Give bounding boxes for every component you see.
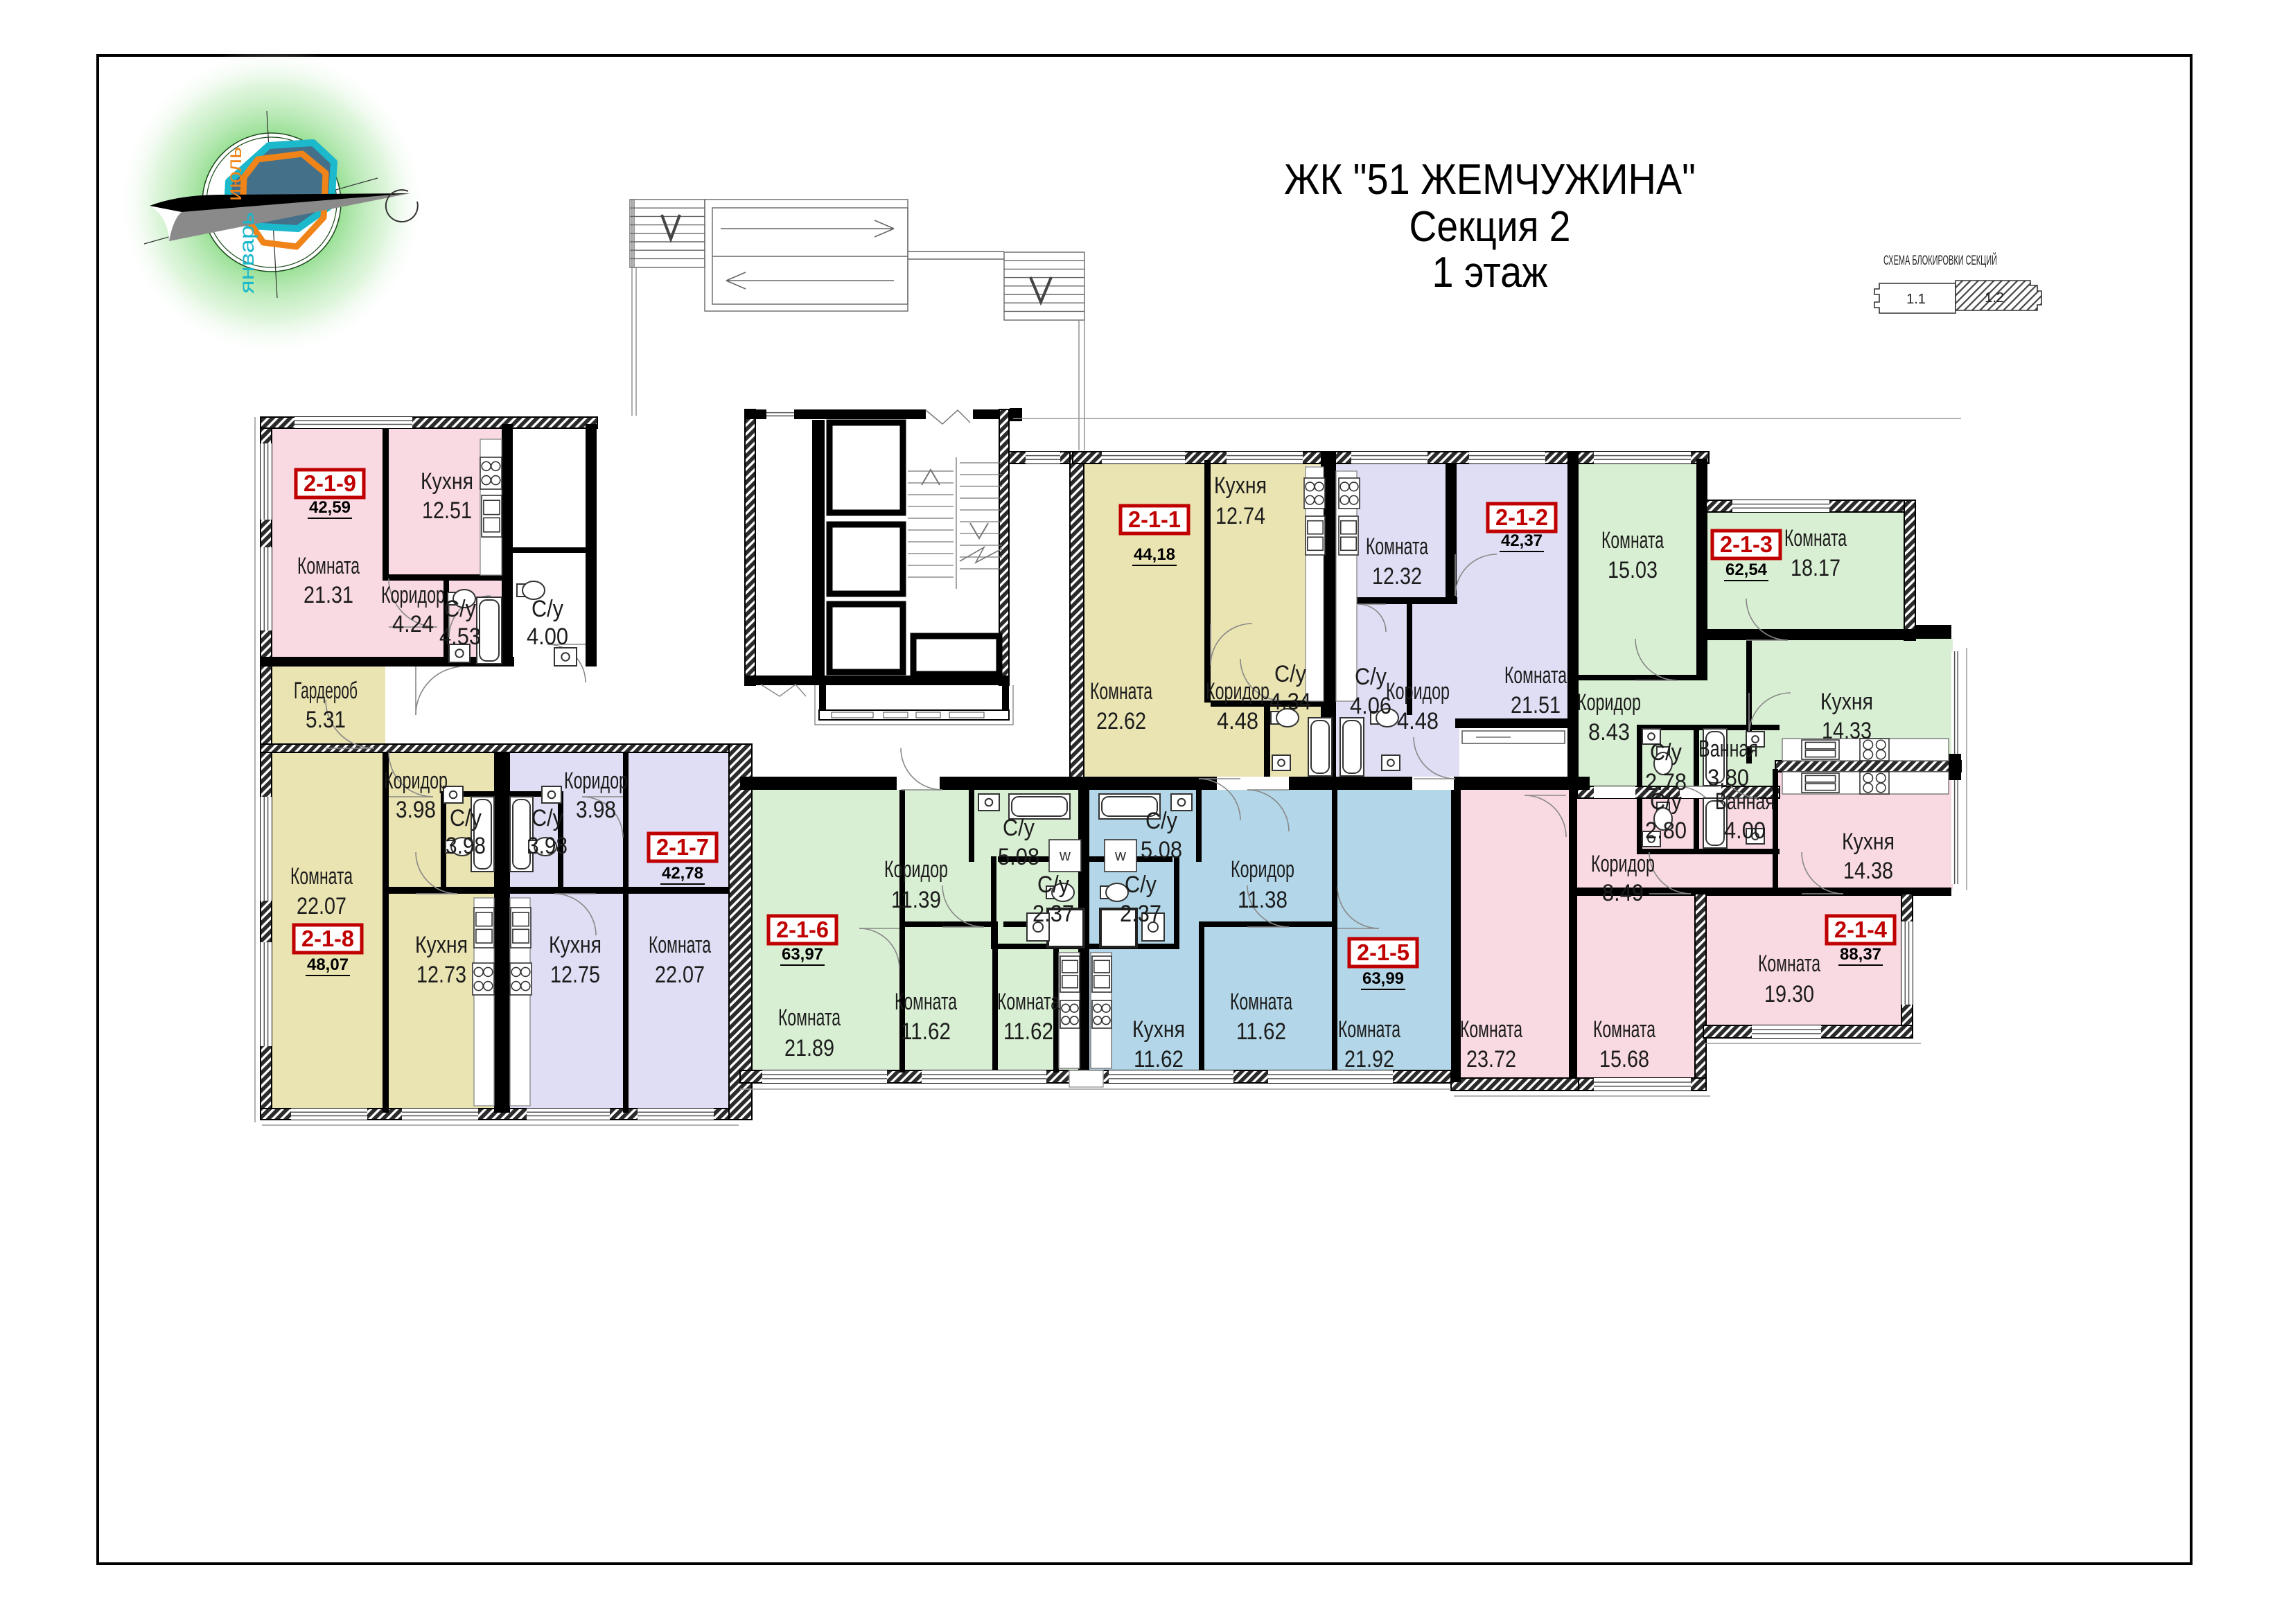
svg-text:22.07: 22.07	[655, 962, 705, 988]
svg-text:2-1-9: 2-1-9	[304, 470, 356, 496]
svg-text:4.48: 4.48	[1397, 708, 1439, 734]
svg-text:Коридор: Коридор	[564, 768, 628, 794]
svg-text:4.24: 4.24	[392, 611, 434, 637]
svg-text:44,18: 44,18	[1134, 545, 1175, 564]
svg-text:5.31: 5.31	[306, 707, 346, 733]
svg-text:1.2: 1.2	[1985, 290, 2004, 306]
svg-text:Комната: Комната	[778, 1005, 841, 1031]
svg-text:Кухня: Кухня	[1820, 689, 1873, 715]
svg-text:1.1: 1.1	[1906, 292, 1926, 307]
svg-text:88,37: 88,37	[1840, 945, 1881, 964]
svg-text:С/у: С/у	[444, 596, 476, 622]
svg-text:Комната: Комната	[895, 989, 957, 1015]
svg-text:2.37: 2.37	[1033, 901, 1074, 927]
svg-text:4.00: 4.00	[527, 624, 568, 650]
svg-text:Комната: Комната	[1230, 989, 1292, 1015]
svg-text:48,07: 48,07	[307, 955, 349, 974]
svg-text:Кухня: Кухня	[1132, 1016, 1185, 1043]
svg-text:8.49: 8.49	[1602, 880, 1644, 906]
svg-text:2-1-6: 2-1-6	[776, 917, 829, 942]
svg-text:8.43: 8.43	[1588, 719, 1630, 745]
svg-text:2.80: 2.80	[1645, 818, 1687, 844]
svg-text:С/у: С/у	[1125, 872, 1157, 898]
svg-text:Комната: Комната	[1090, 678, 1152, 705]
svg-text:2-1-2: 2-1-2	[1495, 504, 1548, 530]
svg-text:12.51: 12.51	[422, 497, 472, 524]
svg-text:Гардероб: Гардероб	[294, 678, 358, 704]
svg-text:Кухня: Кухня	[1214, 473, 1267, 499]
svg-text:Кухня: Кухня	[415, 932, 468, 958]
svg-text:63,99: 63,99	[1362, 969, 1404, 988]
svg-text:Ванная: Ванная	[1698, 736, 1758, 762]
svg-text:3.98: 3.98	[576, 797, 616, 823]
svg-text:ЖК "51 ЖЕМЧУЖИНА": ЖК "51 ЖЕМЧУЖИНА"	[1284, 156, 1696, 204]
svg-text:июль: июль	[223, 147, 246, 201]
svg-text:С/у: С/у	[531, 805, 563, 831]
svg-text:Коридор: Коридор	[1231, 856, 1294, 883]
svg-text:4.53: 4.53	[439, 624, 481, 650]
svg-text:Коридор: Коридор	[1206, 678, 1270, 705]
svg-text:11.39: 11.39	[891, 887, 941, 913]
svg-text:11.62: 11.62	[1236, 1018, 1286, 1045]
svg-text:14.38: 14.38	[1843, 858, 1893, 884]
svg-text:С/у: С/у	[1650, 788, 1682, 815]
svg-text:С/у: С/у	[1037, 872, 1069, 898]
svg-text:январь: январь	[236, 212, 258, 294]
svg-text:4.48: 4.48	[1217, 708, 1258, 734]
svg-text:w: w	[1059, 847, 1071, 864]
svg-text:21.89: 21.89	[784, 1035, 834, 1061]
svg-text:23.72: 23.72	[1466, 1046, 1516, 1073]
svg-text:С/у: С/у	[531, 596, 563, 622]
svg-text:4.00: 4.00	[1724, 818, 1766, 844]
svg-text:3.98: 3.98	[396, 797, 436, 823]
svg-text:Комната: Комната	[1366, 533, 1428, 560]
svg-text:21.51: 21.51	[1511, 692, 1561, 718]
svg-text:Комната: Комната	[1758, 951, 1820, 977]
svg-text:42,37: 42,37	[1501, 531, 1543, 550]
svg-text:Кухня: Кухня	[421, 468, 473, 495]
svg-text:С/у: С/у	[1355, 664, 1387, 690]
svg-text:63,97: 63,97	[782, 945, 823, 964]
svg-text:12.73: 12.73	[416, 962, 466, 988]
svg-text:С/у: С/у	[1274, 661, 1306, 687]
svg-text:14.33: 14.33	[1822, 718, 1872, 744]
svg-text:2.37: 2.37	[1120, 901, 1161, 927]
svg-text:5.08: 5.08	[1141, 837, 1182, 863]
svg-text:1 этаж: 1 этаж	[1432, 249, 1548, 297]
svg-text:11.62: 11.62	[901, 1018, 951, 1045]
svg-text:Комната: Комната	[997, 989, 1060, 1015]
svg-text:22.07: 22.07	[297, 893, 346, 919]
svg-text:С/у: С/у	[1003, 815, 1035, 841]
svg-text:Ванная: Ванная	[1715, 788, 1775, 815]
svg-text:3.98: 3.98	[446, 833, 486, 859]
svg-text:12.75: 12.75	[550, 962, 600, 988]
svg-text:11.62: 11.62	[1134, 1046, 1184, 1073]
svg-text:3.80: 3.80	[1707, 765, 1749, 791]
svg-text:Кухня: Кухня	[1842, 829, 1895, 855]
svg-text:2-1-1: 2-1-1	[1128, 506, 1181, 532]
svg-text:Комната: Комната	[1460, 1016, 1522, 1043]
svg-text:2-1-3: 2-1-3	[1720, 531, 1773, 557]
svg-text:Коридор: Коридор	[1577, 689, 1641, 716]
svg-text:Коридор: Коридор	[384, 768, 448, 794]
svg-text:11.62: 11.62	[1003, 1018, 1053, 1045]
svg-text:2-1-8: 2-1-8	[301, 926, 354, 951]
svg-text:Комната: Комната	[1601, 527, 1664, 554]
svg-text:Комната: Комната	[649, 932, 711, 958]
svg-text:С/у: С/у	[1145, 808, 1177, 834]
svg-text:Кухня: Кухня	[549, 932, 601, 958]
svg-text:Комната: Комната	[297, 553, 360, 579]
svg-text:3.98: 3.98	[527, 833, 568, 859]
svg-text:62,54: 62,54	[1725, 561, 1768, 579]
svg-text:СХЕМА БЛОКИРОВКИ СЕКЦИЙ: СХЕМА БЛОКИРОВКИ СЕКЦИЙ	[1883, 253, 1997, 268]
svg-text:Коридор: Коридор	[381, 582, 445, 608]
svg-text:Комната: Комната	[290, 863, 353, 890]
svg-text:11.38: 11.38	[1238, 887, 1288, 913]
svg-text:2-1-7: 2-1-7	[656, 834, 709, 860]
svg-text:42,59: 42,59	[309, 498, 351, 517]
svg-text:18.17: 18.17	[1791, 555, 1840, 581]
svg-text:21.31: 21.31	[304, 582, 353, 608]
svg-text:4.34: 4.34	[1270, 689, 1311, 715]
svg-text:Комната: Комната	[1338, 1016, 1400, 1043]
svg-text:2-1-4: 2-1-4	[1834, 917, 1888, 942]
svg-text:2-1-5: 2-1-5	[1357, 939, 1409, 965]
svg-text:Комната: Комната	[1784, 525, 1847, 551]
svg-text:12.74: 12.74	[1215, 503, 1265, 529]
svg-text:19.30: 19.30	[1764, 981, 1814, 1007]
svg-text:5.08: 5.08	[998, 844, 1039, 870]
svg-text:4.06: 4.06	[1350, 693, 1391, 719]
svg-text:Секция 2: Секция 2	[1409, 203, 1571, 251]
svg-text:15.68: 15.68	[1599, 1046, 1649, 1073]
svg-text:Комната: Комната	[1504, 662, 1567, 689]
svg-text:С/у: С/у	[1650, 739, 1682, 766]
svg-text:w: w	[1114, 847, 1126, 864]
svg-text:21.92: 21.92	[1344, 1046, 1394, 1073]
svg-text:Комната: Комната	[1593, 1016, 1655, 1043]
svg-text:Коридор: Коридор	[1386, 678, 1450, 705]
svg-text:42,78: 42,78	[662, 864, 703, 883]
svg-text:Коридор: Коридор	[1591, 851, 1655, 877]
svg-text:22.62: 22.62	[1096, 708, 1146, 734]
svg-text:Коридор: Коридор	[884, 856, 948, 883]
svg-text:С/у: С/у	[450, 805, 482, 831]
svg-text:15.03: 15.03	[1608, 557, 1658, 583]
svg-text:12.32: 12.32	[1372, 563, 1422, 590]
